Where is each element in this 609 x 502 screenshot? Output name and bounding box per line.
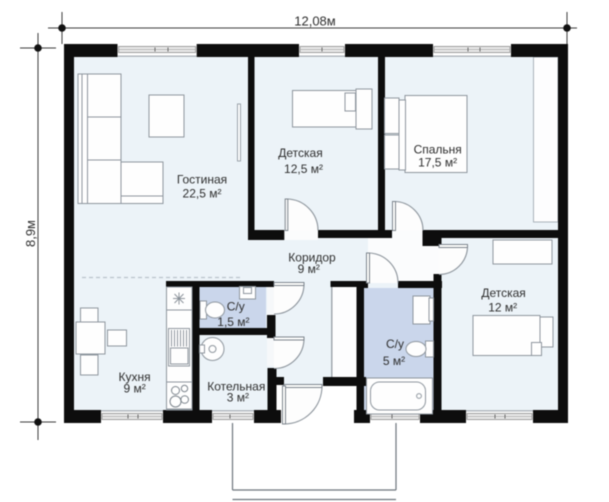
- svg-text:Детская: Детская: [278, 146, 322, 160]
- svg-text:9 м²: 9 м²: [298, 262, 320, 276]
- svg-text:5 м²: 5 м²: [383, 354, 405, 368]
- svg-text:1,5 м²: 1,5 м²: [217, 315, 249, 329]
- svg-text:12,08м: 12,08м: [294, 14, 336, 29]
- svg-text:С/у: С/у: [227, 300, 245, 314]
- svg-text:9 м²: 9 м²: [123, 381, 145, 395]
- svg-text:Спальня: Спальня: [414, 143, 462, 157]
- svg-text:12,5 м²: 12,5 м²: [284, 162, 323, 176]
- svg-text:3 м²: 3 м²: [227, 391, 249, 405]
- svg-text:17,5 м²: 17,5 м²: [418, 156, 457, 170]
- svg-text:Детская: Детская: [481, 286, 525, 300]
- svg-text:12 м²: 12 м²: [488, 301, 517, 315]
- svg-text:С/у: С/у: [386, 337, 404, 351]
- svg-text:22,5 м²: 22,5 м²: [183, 187, 222, 201]
- svg-text:Гостиная: Гостиная: [177, 173, 227, 187]
- svg-text:8,9м: 8,9м: [23, 220, 38, 247]
